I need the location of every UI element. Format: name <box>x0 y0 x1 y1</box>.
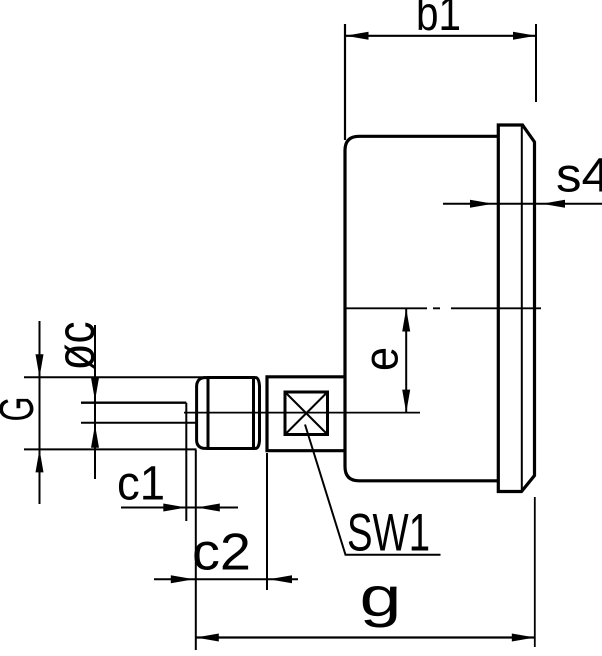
svg-text:SW1: SW1 <box>347 504 430 563</box>
svg-text:øc: øc <box>46 322 106 371</box>
svg-text:s4: s4 <box>556 150 602 203</box>
svg-text:e: e <box>356 347 409 371</box>
svg-text:c2: c2 <box>192 524 251 582</box>
svg-text:b1: b1 <box>416 0 461 41</box>
svg-text:G: G <box>0 397 44 422</box>
svg-text:c1: c1 <box>117 458 165 511</box>
svg-text:g: g <box>360 565 402 628</box>
